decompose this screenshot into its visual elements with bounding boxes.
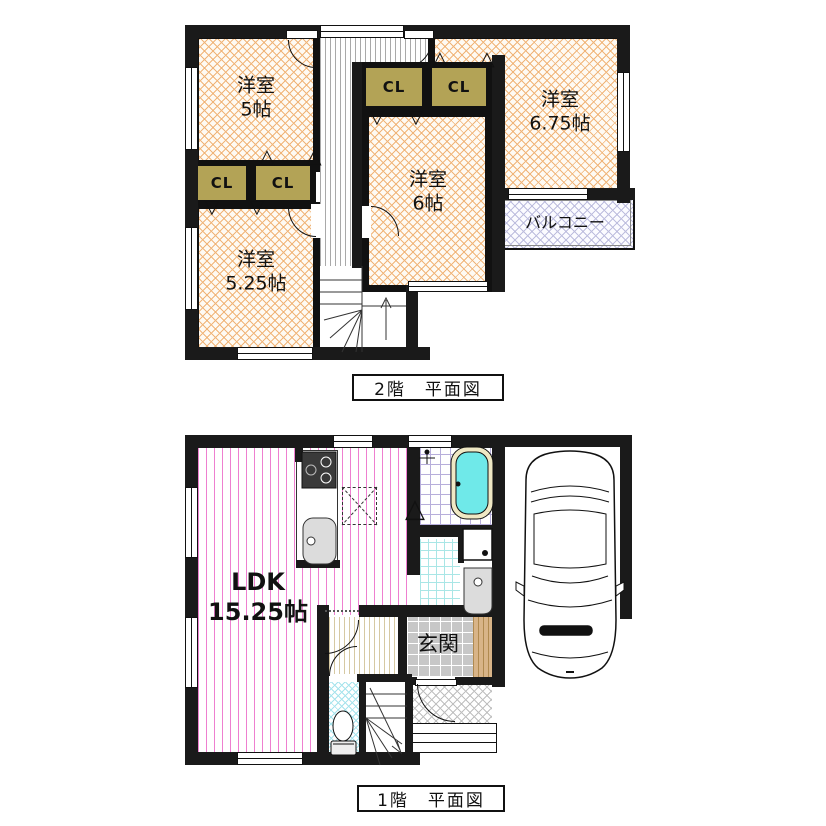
wall [359,605,407,617]
car-icon [516,451,624,678]
room-label-yoshitsu6: 洋室 6帖 [409,168,447,216]
window [617,72,630,152]
wall [398,617,407,677]
wall [185,435,198,765]
balcony-label: バルコニー [525,213,605,233]
floor2-caption: 2階 平面図 [352,374,504,401]
folding-door-mark: △ [306,146,321,166]
wall [405,677,413,765]
folding-door-mark: △ [479,48,494,68]
bathroom [420,448,492,525]
window [408,281,488,292]
wall [455,677,505,685]
wall [407,525,505,537]
room-size: 6.75帖 [529,112,590,134]
door-leaf [404,30,434,39]
room-size: 6帖 [412,192,443,214]
closet-label: CL [366,68,422,106]
room-size: 5.25帖 [225,272,286,294]
room-size: 15.25帖 [208,598,308,626]
wall [352,62,362,268]
window [185,487,198,558]
room-size: 5帖 [240,98,271,120]
floor1-caption: 1階 平面図 [357,785,505,812]
window [408,435,452,448]
genkan-step [473,617,492,677]
room-name: 洋室 [409,168,447,190]
door-opening [362,206,371,238]
wall [407,537,420,575]
stairwell-2f [362,292,408,352]
folding-door-mark: △ [432,48,447,68]
room-name: LDK [231,568,285,596]
ceiling-hatch [342,487,377,525]
opening-dashed [325,610,359,612]
room-name: 洋室 [237,74,275,96]
room-label-ldk: LDK 15.25帖 [208,567,308,627]
washroom [420,539,460,607]
window [320,25,404,38]
room-ldk [198,615,317,755]
room-label-yoshitsu525: 洋室 5.25帖 [225,248,286,296]
entrance-steps [412,723,497,753]
room-label-yoshitsu5: 洋室 5帖 [237,74,275,122]
wall [458,527,464,563]
room-name: 洋室 [541,88,579,110]
wall [406,285,418,360]
room-label-yoshitsu675: 洋室 6.75帖 [529,88,590,136]
wall [317,674,329,682]
wall [357,674,412,682]
window [237,347,313,360]
folding-door-mark: ▽ [369,106,384,126]
room-name: 洋室 [237,248,275,270]
wall [295,448,303,462]
wall [407,605,505,617]
stairwell-2f [320,266,362,352]
window [333,435,373,448]
window [185,617,198,688]
floor-plan: CL CL CL CL △ △ ▽ ▽ △ △ ▽ ▽ 洋室 5帖 洋室 6.7… [0,0,826,826]
kitchen-counter [296,450,338,562]
window-balcony [508,188,588,200]
window [185,227,198,310]
window [237,752,303,765]
wall [492,435,505,687]
wall-carport [492,435,632,447]
wall [359,682,366,765]
closet-label: CL [432,68,486,106]
folding-door-mark: △ [259,146,274,166]
wall-carport [620,435,632,619]
wall [492,55,505,292]
window [185,67,198,150]
folding-door-mark: ▽ [408,106,423,126]
folding-door-mark: △ [405,496,425,522]
folding-door-mark: ▽ [249,196,264,216]
door-leaf [286,30,318,39]
folding-door-mark: ▽ [204,196,219,216]
closet-3: CL [192,160,252,206]
room-label-genkan: 玄関 [417,631,459,657]
